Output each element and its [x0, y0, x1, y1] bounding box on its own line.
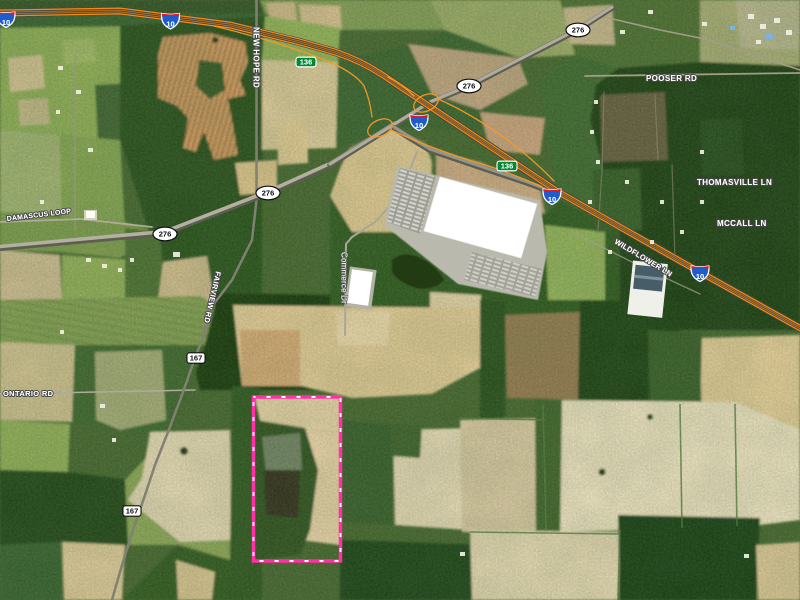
- svg-text:167: 167: [126, 507, 139, 516]
- svg-text:POOSER RD: POOSER RD: [646, 74, 697, 83]
- svg-text:167: 167: [190, 354, 203, 363]
- svg-text:ONTARIO RD: ONTARIO RD: [3, 389, 54, 398]
- svg-text:10: 10: [166, 19, 174, 28]
- svg-text:NEW HOPE RD: NEW HOPE RD: [252, 27, 261, 88]
- svg-text:MCCALL LN: MCCALL LN: [717, 219, 767, 228]
- svg-text:10: 10: [548, 195, 556, 204]
- svg-text:Commerce Dr: Commerce Dr: [340, 252, 349, 304]
- svg-text:136: 136: [300, 58, 313, 67]
- svg-text:10: 10: [2, 18, 10, 27]
- svg-text:10: 10: [696, 272, 704, 281]
- svg-text:276: 276: [572, 26, 585, 35]
- svg-text:10: 10: [415, 121, 423, 130]
- svg-text:276: 276: [159, 230, 172, 239]
- svg-text:THOMASVILLE LN: THOMASVILLE LN: [697, 178, 772, 187]
- svg-text:276: 276: [463, 82, 476, 91]
- svg-text:136: 136: [501, 162, 514, 171]
- svg-text:276: 276: [262, 189, 275, 198]
